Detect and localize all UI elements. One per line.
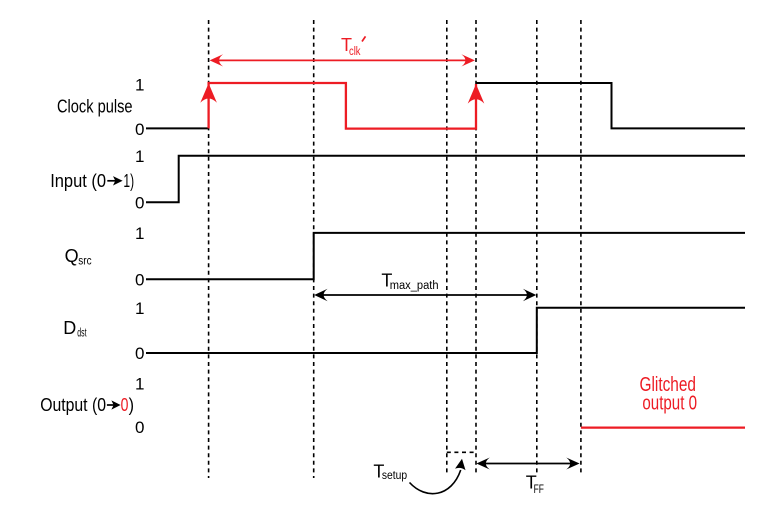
svg-text:1: 1 [135, 299, 144, 318]
svg-text:0: 0 [135, 344, 144, 363]
svg-text:0: 0 [135, 120, 144, 139]
svg-text:0: 0 [135, 271, 144, 290]
svg-text:D: D [63, 318, 76, 338]
svg-text:max_path: max_path [390, 280, 439, 292]
svg-text:0: 0 [135, 418, 144, 437]
svg-text:1: 1 [135, 147, 144, 166]
svg-text:1): 1) [123, 171, 134, 191]
svg-text:Clock pulse: Clock pulse [57, 97, 133, 117]
svg-text:FF: FF [534, 484, 544, 496]
svg-text:setup: setup [382, 470, 407, 482]
svg-text:src: src [78, 256, 92, 268]
svg-text:): ) [129, 395, 134, 415]
svg-text:dst: dst [77, 328, 87, 340]
svg-text:1: 1 [135, 75, 144, 94]
svg-text:1: 1 [135, 224, 144, 243]
svg-text:0: 0 [121, 395, 129, 415]
svg-text:Q: Q [65, 246, 79, 266]
svg-text:Output (0: Output (0 [40, 395, 106, 415]
svg-text:1: 1 [135, 375, 144, 394]
svg-text:Input (0: Input (0 [50, 171, 106, 191]
svg-text:clk: clk [349, 46, 361, 58]
svg-text:0: 0 [135, 194, 144, 213]
svg-text:output 0: output 0 [642, 393, 697, 415]
